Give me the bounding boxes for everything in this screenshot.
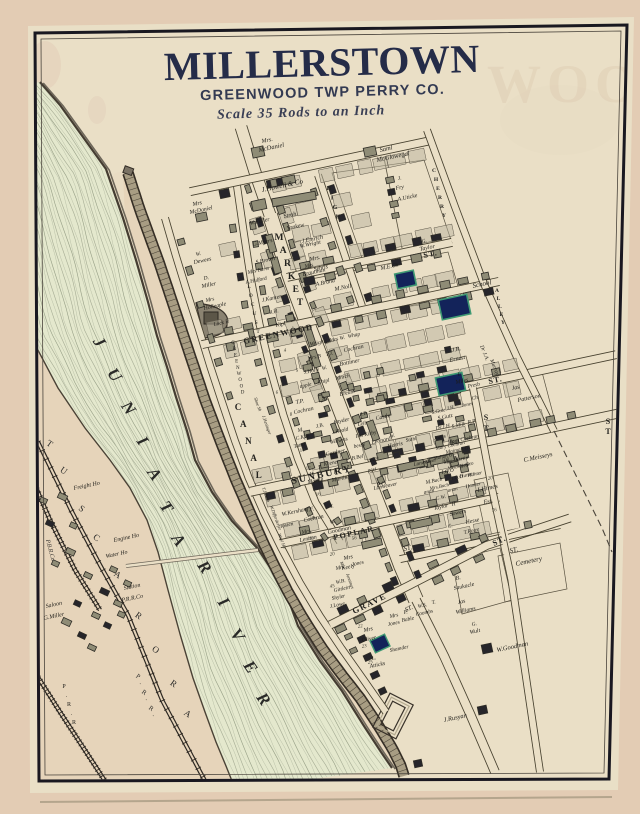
svg-text:E: E [235,360,238,365]
svg-text:O: O [238,378,242,383]
svg-text:A: A [250,453,257,463]
svg-text:O: O [249,293,253,299]
svg-text:L: L [256,470,262,480]
svg-text:Y: Y [442,213,446,219]
svg-text:T: T [297,298,304,308]
svg-text:C: C [432,168,436,174]
svg-text:T: T [605,427,611,436]
svg-text:E: E [500,312,504,318]
svg-text:G: G [231,341,235,346]
svg-text:H.: H. [332,469,339,476]
svg-text:E: E [293,285,299,295]
svg-text:A: A [495,288,499,294]
svg-text:H: H [434,177,439,183]
svg-text:E: E [436,186,440,192]
svg-text:C: C [251,302,255,308]
svg-text:L: L [498,304,502,310]
svg-text:K: K [288,272,296,282]
svg-text:T: T [483,424,489,433]
svg-text:R: R [72,720,76,726]
svg-text:A: A [280,246,287,256]
svg-text:M: M [275,233,284,243]
svg-text:R: R [67,702,71,708]
svg-text:G: G [333,205,338,211]
svg-text:U: U [252,311,256,317]
svg-text:Y: Y [501,320,505,326]
svg-text:D.: D. [202,275,209,282]
svg-text:WOO: WOO [487,54,640,114]
svg-text:W: W [237,372,242,377]
svg-text:H: H [336,215,341,221]
svg-text:N: N [245,436,252,446]
svg-text:L: L [497,296,501,302]
svg-text:H.: H. [308,471,315,478]
svg-text:N: N [236,366,240,371]
svg-text:S: S [255,320,258,326]
svg-text:S: S [484,413,489,422]
svg-text:E: E [234,353,237,358]
svg-text:A: A [240,419,247,429]
svg-text:O: O [240,384,244,389]
svg-text:D: D [241,391,245,396]
svg-text:R: R [284,259,291,269]
svg-text:C: C [235,402,242,412]
svg-text:H: H [327,186,332,192]
svg-text:S: S [606,417,611,426]
